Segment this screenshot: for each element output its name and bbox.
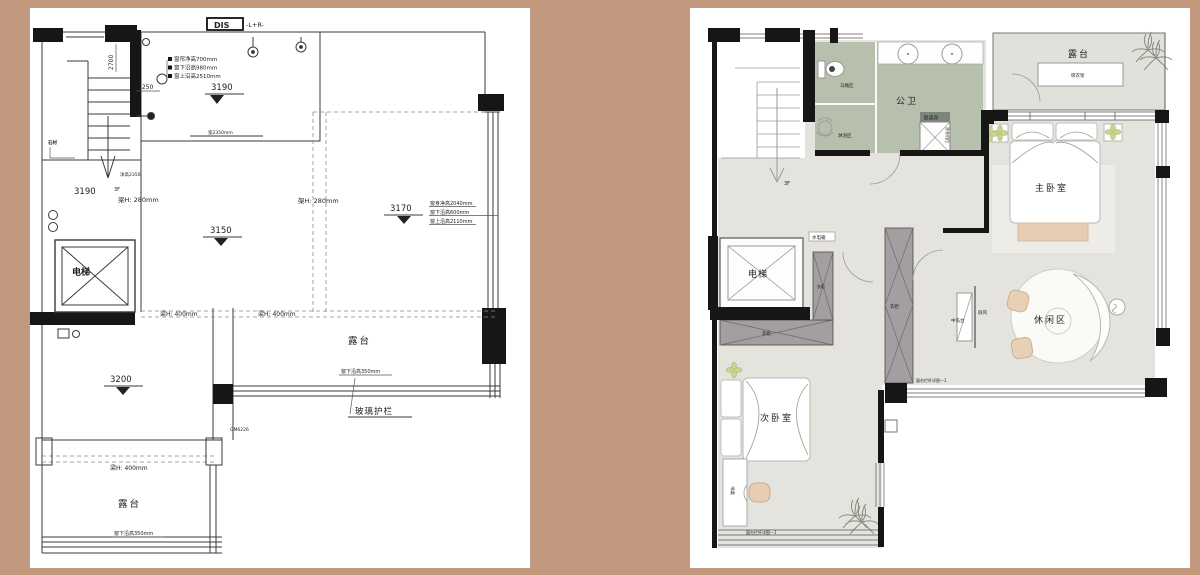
- switch-box: [885, 420, 897, 432]
- wardrobe-vertical-left: 衣柜: [813, 252, 833, 320]
- beam280-label: 梁H: 280mm: [118, 195, 159, 204]
- dis-suffix: -L+R-: [246, 21, 265, 29]
- left-floorplan-drawing: 电梯 DIS -L+R- 2700 1250 窗帘净高700mm 窗下沿高980…: [30, 8, 530, 568]
- terrace-b-label: 露台: [118, 498, 141, 510]
- utility-box: 水电箱: [809, 232, 835, 241]
- elev-room-value: 3190: [211, 83, 233, 93]
- pillow: [1056, 123, 1097, 140]
- right-floorplan-drawing: 管道井 洗衣机位 3F 露台 晾衣架: [690, 8, 1190, 568]
- ann-top-1: 窗帘净高700mm: [174, 55, 217, 63]
- wardrobe-vertical-right: 衣柜: [885, 228, 913, 383]
- pillow: [721, 419, 741, 456]
- pillow: [721, 380, 741, 417]
- door-symbol: [58, 329, 80, 338]
- desk: [723, 459, 747, 526]
- utility-label: 水电箱: [812, 234, 826, 241]
- wardrobe-horizontal: 衣柜: [720, 320, 833, 345]
- left-walls-thin: [42, 30, 500, 553]
- elevator-shaft: 电梯: [720, 238, 803, 308]
- note-a: 窗台栏杆详图—1: [916, 377, 947, 383]
- leisure-label: 休闲区: [1034, 314, 1067, 326]
- glass-rail-label: 玻璃护栏: [355, 406, 393, 417]
- beam400-a: 梁H: 400mm: [160, 310, 198, 318]
- drying-rack-label: 晾衣架: [1071, 72, 1085, 79]
- wardrobe-label: 衣柜: [890, 303, 899, 310]
- stone-label: 石材: [47, 139, 57, 146]
- shower-zone-label: 淋浴区: [838, 132, 852, 139]
- ann-top-3: 窗上沿高2510mm: [174, 72, 221, 80]
- island-label: 中岛台: [951, 317, 965, 324]
- ann-top-2: 窗下沿高980mm: [174, 64, 217, 72]
- ann-right-1: 窗身净高2040mm: [430, 200, 473, 207]
- elevation-marker-3190: 3190: [205, 83, 244, 104]
- left-floorplan-panel: 电梯 DIS -L+R- 2700 1250 窗帘净高700mm 窗下沿高980…: [30, 8, 530, 568]
- dis-label: DIS: [214, 21, 230, 30]
- right-floorplan-panel: 管道井 洗衣机位 3F 露台 晾衣架: [690, 8, 1190, 568]
- screen-label: 屏风: [978, 310, 987, 316]
- wardrobe-label: 衣柜: [762, 330, 771, 337]
- elevation-marker-3150: 3150: [203, 226, 242, 246]
- toilet-zone-label: 马桶区: [840, 82, 854, 89]
- elevation-marker-3200: 3200: [104, 375, 143, 395]
- toilet-icon: [818, 61, 844, 78]
- stair-floor-label: 3F: [114, 187, 120, 193]
- note-b: 窗台栏杆详图—1: [746, 529, 777, 535]
- wardrobe-label: 衣柜: [817, 283, 825, 289]
- washer-label: 洗衣机位: [945, 127, 951, 143]
- shaft-label: 管道井: [924, 115, 939, 122]
- dim-1250: 1250: [138, 84, 153, 91]
- elevator-label: 电梯: [748, 268, 768, 280]
- elev-right-value: 3170: [390, 204, 412, 214]
- beam400-c: 梁H: 400mm: [110, 464, 148, 472]
- side-table: [1109, 299, 1125, 315]
- screenshot-root: { "colors": { "page_bg": "#c2997f", "wal…: [0, 0, 1200, 575]
- stone-tag: 石材: [47, 139, 75, 158]
- ann-right-3: 窗上沿高2110mm: [430, 218, 473, 225]
- left-elevator-shaft: [55, 240, 135, 312]
- detail-code: GM6226: [230, 427, 249, 433]
- elev-hall-3190: 3190: [74, 187, 96, 197]
- dis-switch-box: DIS -L+R-: [207, 18, 265, 30]
- dim-2700: 2700: [108, 55, 115, 70]
- window-post: [206, 438, 222, 465]
- stair-note: 净高2350: [120, 171, 141, 178]
- stair-arrow: [101, 116, 115, 178]
- desk-chair: [749, 483, 770, 502]
- beam400-b: 梁H: 400mm: [258, 310, 296, 318]
- utility-closet: 管道井 洗衣机位: [920, 112, 951, 153]
- bedroom2-label: 次卧室: [760, 412, 793, 424]
- master-label: 主卧室: [1035, 182, 1068, 194]
- sill350-a: 窗下沿高350mm: [341, 368, 380, 375]
- stair-floor-label: 3F: [784, 181, 790, 187]
- terrace-label: 露台: [1068, 48, 1090, 60]
- rack280-label: 架H: 280mm: [298, 197, 339, 205]
- ann-right-2: 窗下沿高600mm: [430, 209, 469, 216]
- desk-label: 书桌: [729, 486, 736, 495]
- window-width-note: 宽2350mm: [208, 129, 233, 136]
- terrace-a-label: 露台: [348, 335, 371, 347]
- left-elevator-label: 电梯: [72, 266, 90, 278]
- bench: [1018, 223, 1088, 241]
- elev-low-value: 3200: [110, 375, 132, 385]
- top-window-annotations: 2700 1250 窗帘净高700mm 窗下沿高980mm 窗上沿高2510mm: [108, 44, 221, 91]
- glass-rail-callout: 玻璃护栏: [348, 378, 412, 417]
- cushion: [1010, 336, 1033, 359]
- sill350-b: 窗下沿高350mm: [114, 530, 153, 537]
- window-post: [36, 438, 52, 465]
- pillow: [1012, 123, 1053, 140]
- elev-mid-value: 3150: [210, 226, 232, 236]
- elevation-marker-3170: 3170: [384, 204, 423, 224]
- left-beam-dashed-lines: [42, 112, 498, 462]
- bath-label: 公卫: [896, 96, 918, 107]
